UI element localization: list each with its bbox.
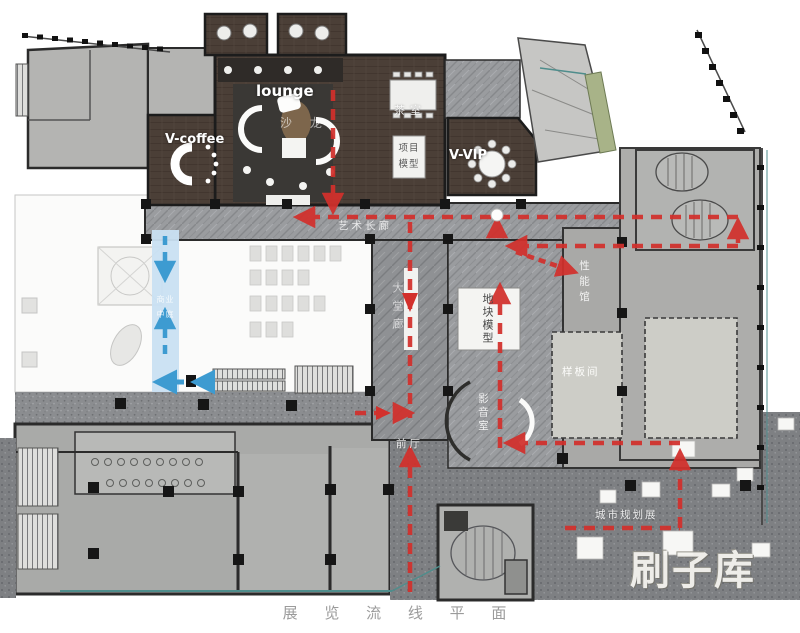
floor-plan-drawing <box>0 0 800 633</box>
stair-core-bottom <box>438 505 533 600</box>
floor-plan-page: lounge 沙 龙 茶室 V-coffee V-VIP 项目 模型 艺术长廊 … <box>0 0 800 633</box>
